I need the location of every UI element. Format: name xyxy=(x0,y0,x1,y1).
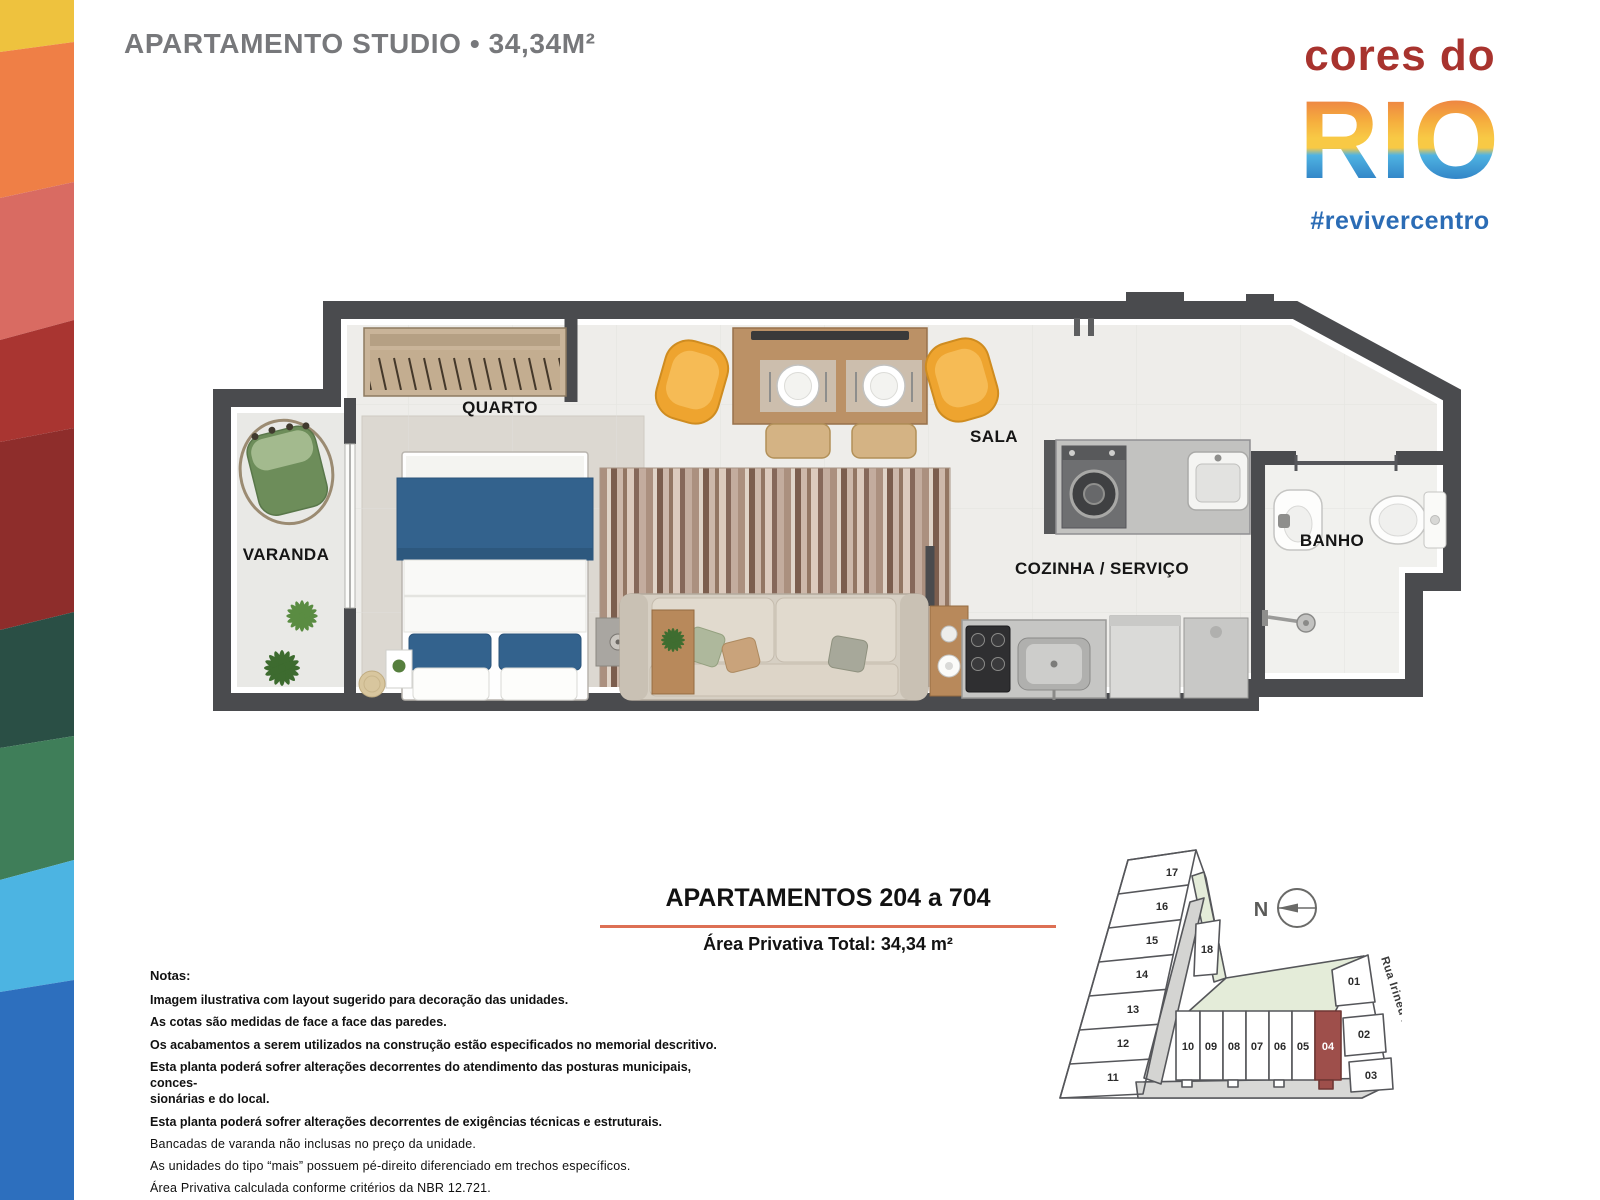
notes-block: Notas: Imagem ilustrativa com layout sug… xyxy=(150,968,740,1200)
wardrobe xyxy=(364,328,566,396)
north-label: N xyxy=(1254,899,1268,921)
site-keyplan: 17 16 15 14 13 12 11 18 10 09 08 07 06 0… xyxy=(1030,832,1402,1120)
toilet xyxy=(1370,492,1446,548)
floor-plan: QUARTO VARANDA SALA COZINHA / SERVIÇO BA… xyxy=(200,278,1470,720)
logo-rio-text: RIO xyxy=(1299,79,1501,200)
accent-divider xyxy=(600,925,1056,928)
stove xyxy=(966,626,1010,692)
note-item: Esta planta poderá sofrer alterações dec… xyxy=(150,1114,740,1130)
unit-label: 16 xyxy=(1156,901,1168,913)
note-item: As unidades do tipo “mais” possuem pé-di… xyxy=(150,1158,740,1174)
note-item: Esta planta poderá sofrer alterações dec… xyxy=(150,1059,740,1108)
room-label-varanda: VARANDA xyxy=(243,545,330,564)
plant-icon xyxy=(264,650,300,686)
unit-label: 05 xyxy=(1297,1041,1309,1053)
room-label-quarto: QUARTO xyxy=(462,398,538,417)
private-area-text: Área Privativa Total: 34,34 m² xyxy=(600,934,1056,955)
unit-label: 17 xyxy=(1166,867,1178,879)
unit-label-highlighted: 04 xyxy=(1322,1041,1335,1053)
note-item: Imagem ilustrativa com layout sugerido p… xyxy=(150,992,740,1008)
kitchen-counter xyxy=(962,616,1248,700)
room-label-cozinha: COZINHA / SERVIÇO xyxy=(1015,559,1189,578)
unit-label: 10 xyxy=(1182,1041,1194,1053)
plant-icon xyxy=(286,600,318,632)
kitchen-island xyxy=(1044,440,1250,534)
unit-label: 14 xyxy=(1136,969,1149,981)
note-item: As cotas são medidas de face a face das … xyxy=(150,1014,740,1030)
bed xyxy=(397,452,593,700)
unit-label: 02 xyxy=(1358,1029,1370,1041)
notes-title: Notas: xyxy=(150,968,740,983)
island-sink xyxy=(1188,452,1248,510)
unit-label: 12 xyxy=(1117,1038,1129,1050)
unit-label: 03 xyxy=(1365,1070,1377,1082)
logo-cores-do: cores do xyxy=(1292,34,1508,78)
north-compass-icon: N xyxy=(1254,889,1316,927)
logo: cores do RIO #revivercentro xyxy=(1292,34,1508,236)
unit-label: 18 xyxy=(1201,944,1213,956)
unit-label: 07 xyxy=(1251,1041,1263,1053)
unit-label: 06 xyxy=(1274,1041,1286,1053)
room-label-banho: BANHO xyxy=(1300,531,1364,550)
washing-machine xyxy=(1062,446,1126,528)
logo-rio: RIO xyxy=(1292,78,1508,200)
brochure-page: APARTAMENTO STUDIO • 34,34M² cores do RI… xyxy=(0,0,1600,1200)
note-item: Os acabamentos a serem utilizados na con… xyxy=(150,1037,740,1053)
page-title: APARTAMENTO STUDIO • 34,34M² xyxy=(124,28,596,60)
unit-label: 01 xyxy=(1348,976,1360,988)
room-label-sala: SALA xyxy=(970,427,1018,446)
unit-label: 13 xyxy=(1127,1004,1139,1016)
color-strip xyxy=(0,0,74,1200)
plant-icon xyxy=(661,628,685,652)
unit-label: 09 xyxy=(1205,1041,1217,1053)
unit-label: 15 xyxy=(1146,935,1158,947)
apartments-heading: APARTAMENTOS 204 a 704 xyxy=(600,884,1056,913)
note-item: Bancadas de varanda não inclusas no preç… xyxy=(150,1136,740,1152)
unit-label: 11 xyxy=(1107,1072,1119,1084)
logo-hashtag: #revivercentro xyxy=(1292,207,1508,236)
fridge xyxy=(1110,616,1180,698)
note-item: Área Privativa calculada conforme critér… xyxy=(150,1180,740,1196)
unit-label: 08 xyxy=(1228,1041,1240,1053)
